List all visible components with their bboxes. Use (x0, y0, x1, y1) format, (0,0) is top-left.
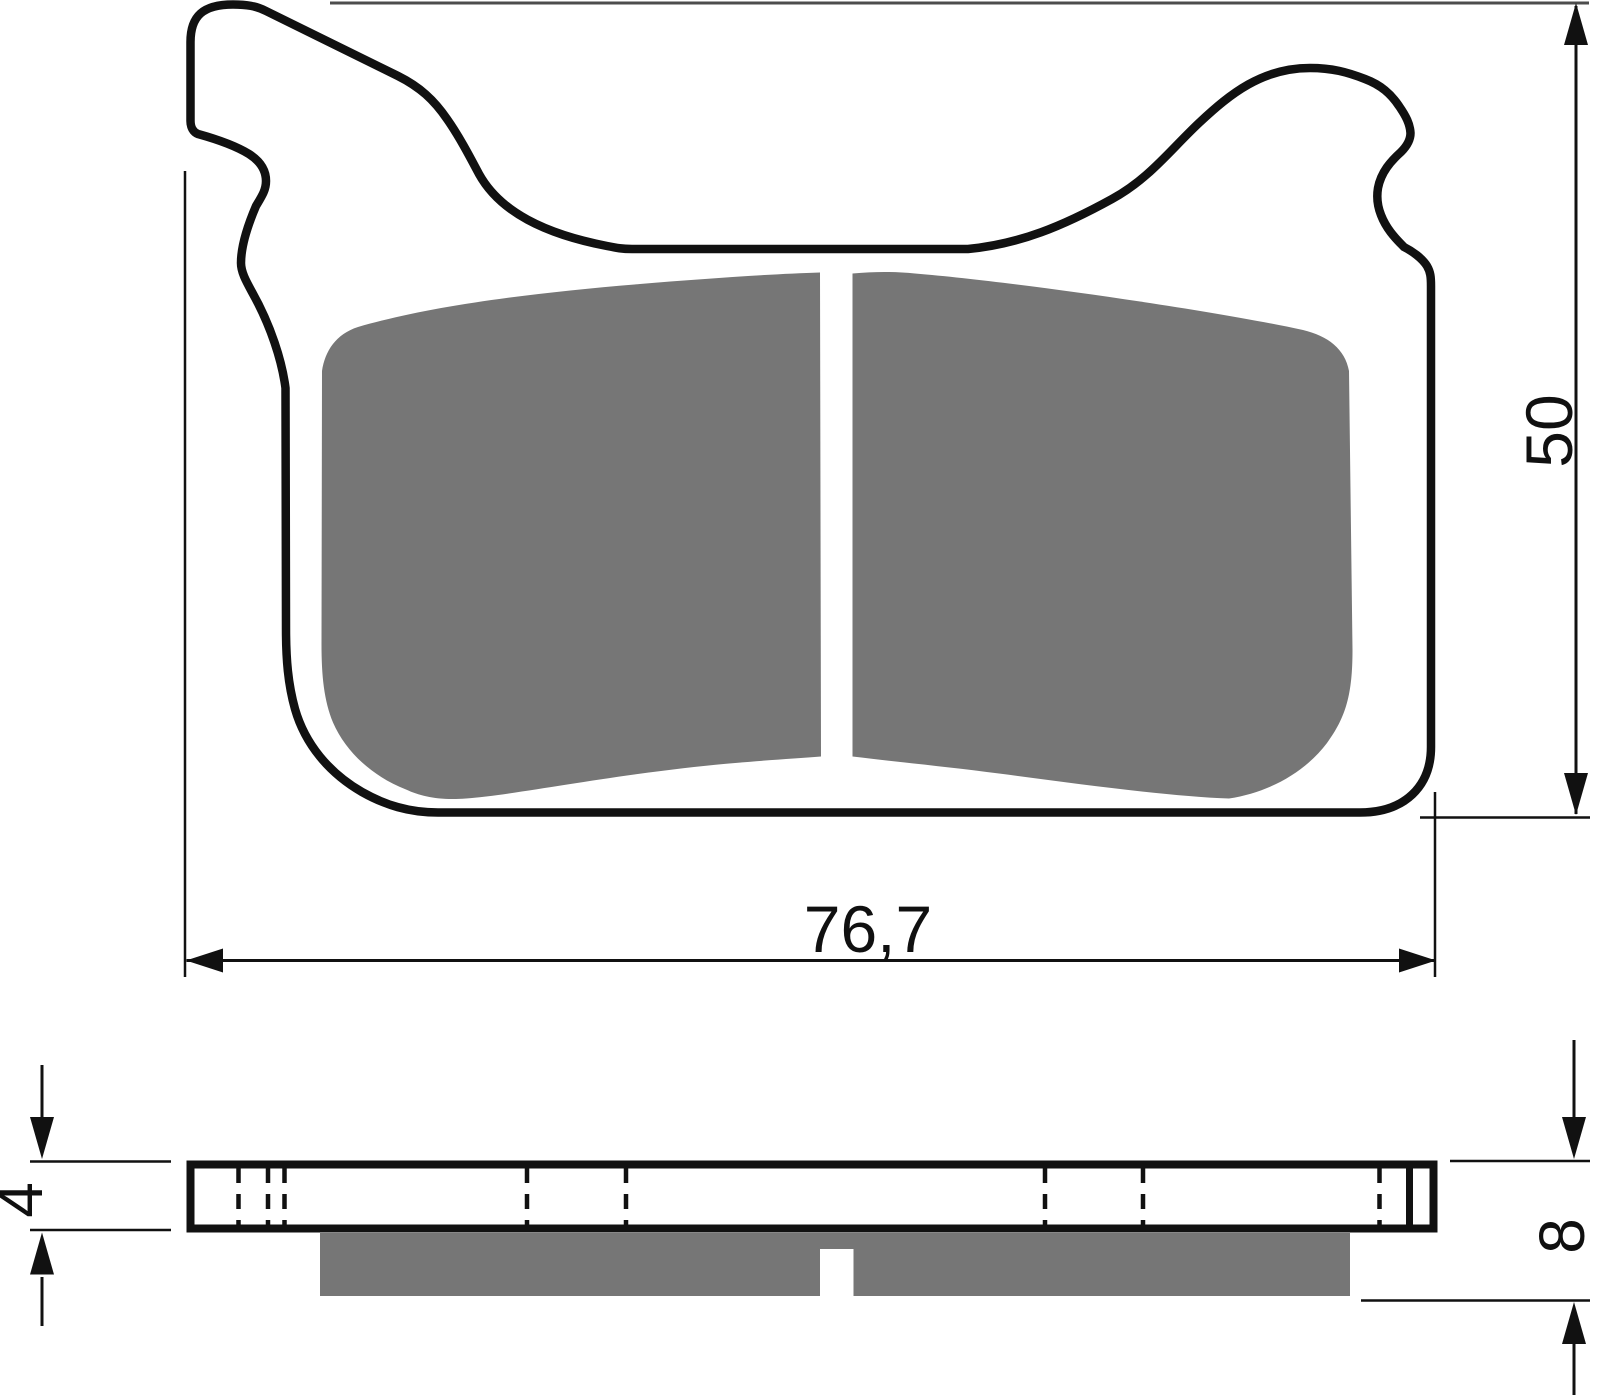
svg-text:50: 50 (1512, 394, 1586, 467)
svg-text:4: 4 (0, 1182, 56, 1218)
svg-text:76,7: 76,7 (804, 892, 932, 966)
svg-text:8: 8 (1526, 1218, 1598, 1254)
